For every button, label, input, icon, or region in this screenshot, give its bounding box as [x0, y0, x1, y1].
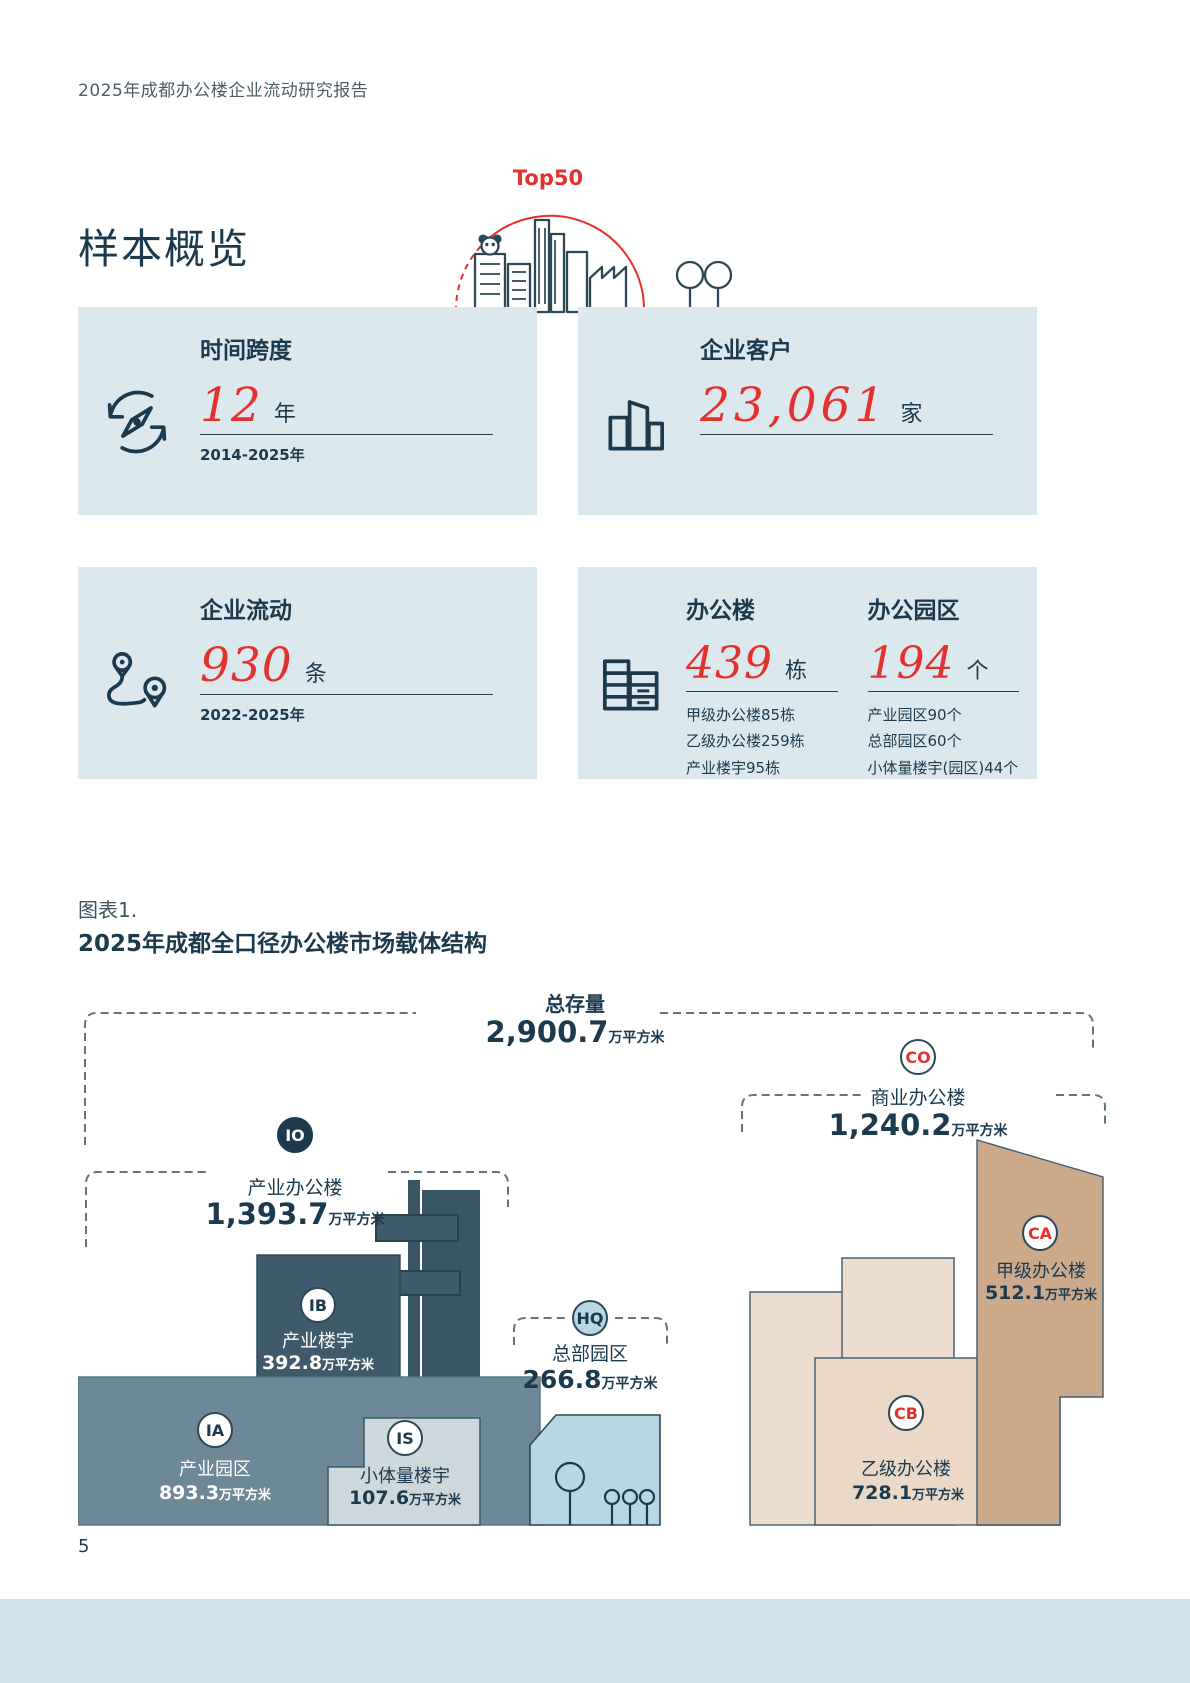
card-value: 194	[868, 641, 955, 687]
hq-value: 266.8万平方米	[522, 1365, 657, 1394]
ib-label: 产业楼宇	[282, 1327, 354, 1353]
co-value: 1,240.2万平方米	[829, 1108, 1008, 1142]
city-skyline-panda-illustration	[428, 160, 758, 318]
building-icon	[567, 252, 587, 312]
total-label: 总存量	[545, 988, 605, 1017]
card-unit: 栋	[785, 653, 807, 685]
cb-label: 乙级办公楼	[861, 1455, 951, 1481]
card-value: 930	[200, 641, 293, 690]
ia-badge: IA	[197, 1412, 233, 1448]
detail-line: 小体量楼宇(园区)44个	[868, 755, 1020, 781]
co-label: 商业办公楼	[870, 1083, 965, 1110]
figure-title: 2025年成都全口径办公楼市场载体结构	[78, 924, 487, 958]
card-value: 12	[200, 381, 262, 430]
card-note: 2014-2025年	[200, 444, 493, 465]
co-badge: CO	[900, 1039, 936, 1075]
figure-caption: 图表1.	[78, 894, 137, 923]
card-title: 办公园区	[868, 591, 1020, 625]
ib-badge: IB	[300, 1287, 336, 1323]
divider	[200, 694, 493, 695]
ca-label: 甲级办公楼	[996, 1257, 1086, 1283]
footer-bar	[0, 1599, 1190, 1683]
chart-shapes	[78, 975, 1132, 1535]
hq-label: 总部园区	[552, 1339, 628, 1366]
card-title: 办公楼	[686, 591, 838, 625]
card-title: 时间跨度	[200, 331, 493, 365]
total-value: 2,900.7万平方米	[486, 1015, 665, 1049]
card-stock: 办公楼 439 栋 甲级办公楼85栋 乙级办公楼259栋 产业楼宇95栋	[578, 567, 1037, 779]
card-unit: 家	[900, 396, 922, 428]
stock-details: 甲级办公楼85栋 乙级办公楼259栋 产业楼宇95栋	[686, 702, 838, 781]
io-label: 产业办公楼	[247, 1173, 342, 1200]
unit-suffix: 万平方米	[608, 1030, 664, 1046]
stat-cards: 时间跨度 12 年 2014-2025年 企业客户 23	[78, 307, 1037, 779]
segment-ca-block	[977, 1140, 1103, 1525]
segment-hq-block	[530, 1415, 660, 1525]
compass-refresh-icon	[78, 307, 196, 515]
card-note: 2022-2025年	[200, 704, 493, 725]
section-title: 样本概览	[78, 215, 250, 275]
tower-icon	[551, 234, 564, 312]
co-bracket-right	[1056, 1095, 1105, 1125]
is-badge: IS	[387, 1420, 423, 1456]
tower-icon	[535, 220, 549, 312]
divider	[868, 691, 1020, 692]
io-badge: IO	[277, 1117, 313, 1153]
market-structure-chart: 总存量 2,900.7万平方米 IO 产业办公楼 1,393.7万平方米 CO …	[78, 975, 1132, 1535]
tree-icon	[705, 262, 731, 288]
stock-details: 产业园区90个 总部园区60个 小体量楼宇(园区)44个	[868, 702, 1020, 781]
report-page: 2025年成都办公楼企业流动研究报告 Top50	[0, 0, 1190, 1683]
cb-value: 728.1万平方米	[852, 1482, 964, 1504]
card-title: 企业流动	[200, 591, 493, 625]
detail-line: 甲级办公楼85栋	[686, 702, 838, 728]
total-bracket-right	[660, 1013, 1093, 1049]
cb-badge: CB	[888, 1395, 924, 1431]
card-unit: 个	[966, 653, 988, 685]
io-bracket-left	[86, 1172, 208, 1247]
is-label: 小体量楼宇	[360, 1462, 450, 1488]
stock-col-buildings: 办公楼 439 栋 甲级办公楼85栋 乙级办公楼259栋 产业楼宇95栋	[686, 591, 838, 781]
divider	[700, 434, 993, 435]
card-time-span: 时间跨度 12 年 2014-2025年	[78, 307, 537, 515]
detail-line: 产业园区90个	[868, 702, 1020, 728]
tree-icon	[677, 262, 703, 288]
factory-icon	[590, 267, 626, 312]
ia-label: 产业园区	[179, 1455, 251, 1481]
stacked-units-icon	[578, 567, 682, 779]
detail-line: 总部园区60个	[868, 728, 1020, 754]
divider	[686, 691, 838, 692]
route-pins-icon	[78, 567, 196, 779]
panda-head-icon	[482, 238, 499, 255]
ca-badge: CA	[1022, 1215, 1058, 1251]
card-unit: 条	[305, 656, 327, 688]
detail-line: 乙级办公楼259栋	[686, 728, 838, 754]
ca-value: 512.1万平方米	[985, 1282, 1097, 1304]
ib-value: 392.8万平方米	[262, 1352, 374, 1374]
total-bracket-left	[85, 1013, 416, 1145]
card-title: 企业客户	[700, 331, 993, 365]
ia-value: 893.3万平方米	[159, 1482, 271, 1504]
total-number: 2,900.7	[486, 1015, 609, 1049]
card-value: 439	[686, 641, 773, 687]
is-value: 107.6万平方米	[349, 1487, 461, 1509]
hq-badge: HQ	[572, 1300, 608, 1336]
report-header: 2025年成都办公楼企业流动研究报告	[78, 76, 368, 101]
card-unit: 年	[274, 396, 296, 428]
divider	[200, 434, 493, 435]
building-icon	[475, 254, 505, 312]
page-number: 5	[78, 1536, 89, 1557]
card-value: 23,061	[700, 381, 888, 430]
stock-col-parks: 办公园区 194 个 产业园区90个 总部园区60个 小体量楼宇(园区)44个	[868, 591, 1020, 781]
io-value: 1,393.7万平方米	[206, 1197, 385, 1231]
office-buildings-icon	[578, 307, 696, 515]
detail-line: 产业楼宇95栋	[686, 755, 838, 781]
card-clients: 企业客户 23,061 家	[578, 307, 1037, 515]
card-moves: 企业流动 930 条 2022-2025年	[78, 567, 537, 779]
